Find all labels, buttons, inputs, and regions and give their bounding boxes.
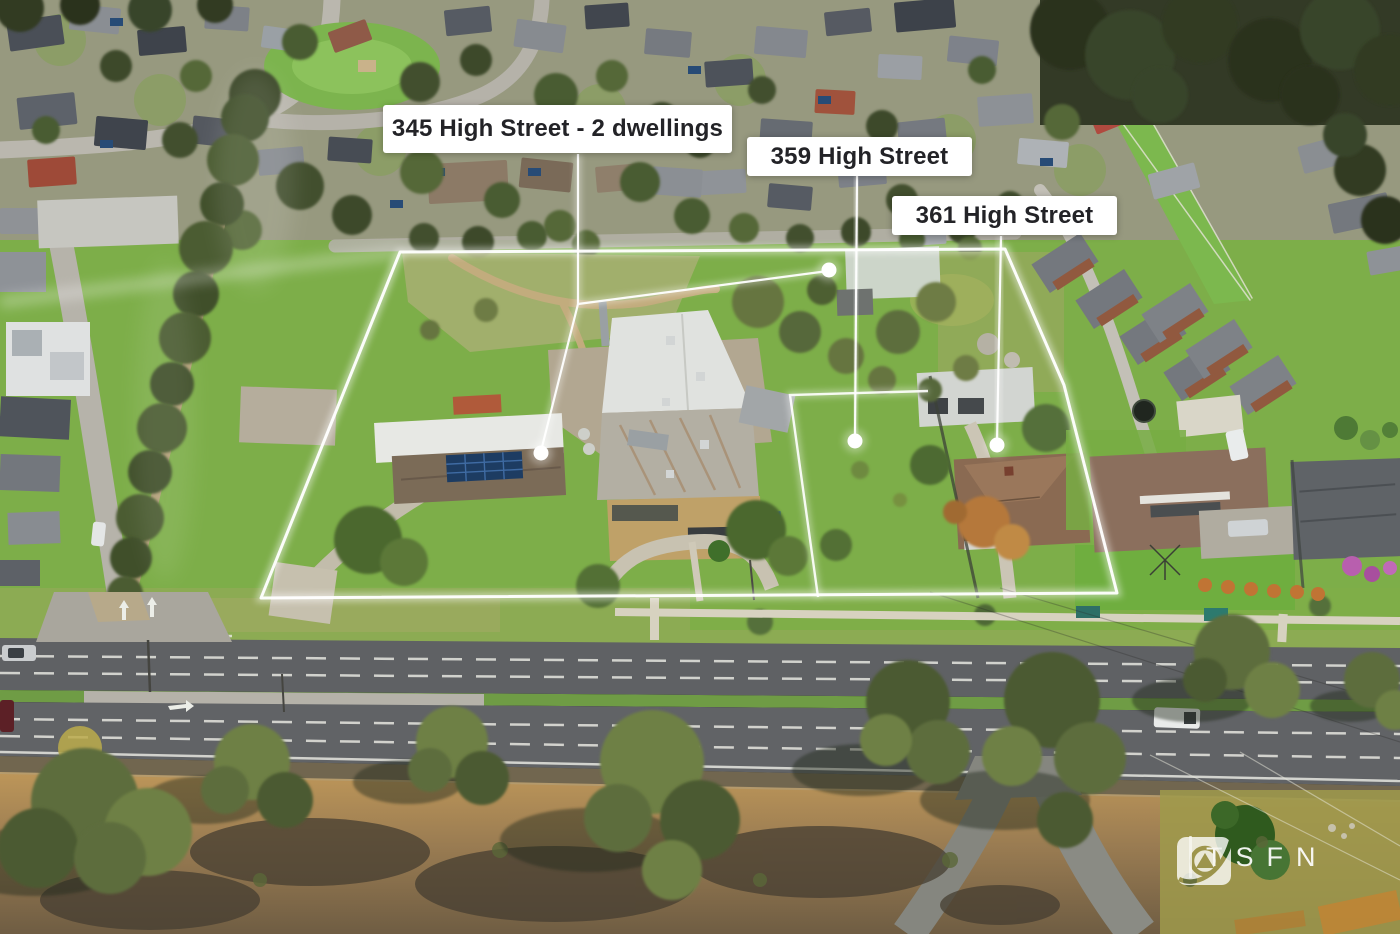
label-345-text: 345 High Street - 2 dwellings (392, 115, 723, 143)
aerial-photo-screenshot: 345 High Street - 2 dwellings 359 High S… (0, 0, 1400, 934)
leader-line-361 (997, 236, 1001, 442)
label-345-high-street: 345 High Street - 2 dwellings (383, 105, 732, 153)
tsfn-logo-icon (1176, 836, 1232, 886)
label-361-text: 361 High Street (916, 202, 1094, 230)
leader-line-359 (855, 176, 857, 438)
label-359-text: 359 High Street (771, 143, 949, 171)
leader-line-345 (541, 154, 828, 451)
tsfn-watermark: TSFN (1176, 836, 1329, 878)
label-361-high-street: 361 High Street (892, 196, 1117, 235)
boundary-outline (261, 249, 1117, 598)
lot-divider-glow (790, 391, 928, 597)
boundary-outline-glow (261, 249, 1117, 598)
label-359-high-street: 359 High Street (747, 137, 972, 176)
